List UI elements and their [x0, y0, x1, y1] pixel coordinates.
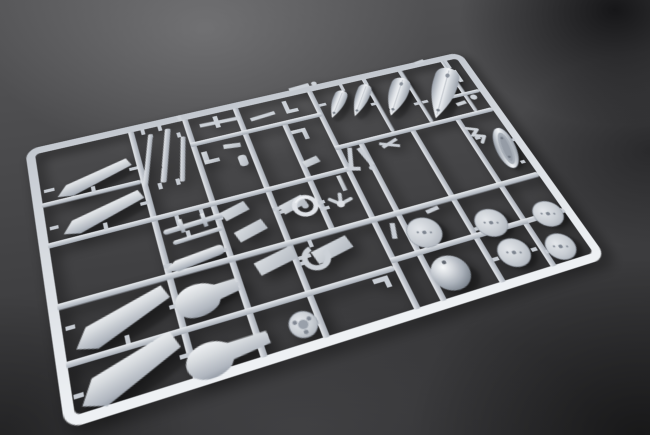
sprue-tree [25, 52, 607, 430]
strip-1 [143, 134, 153, 187]
sprue-photograph [0, 0, 650, 435]
strip-3 [180, 136, 186, 181]
sprue-canvas [25, 52, 607, 430]
strip-2 [160, 129, 170, 183]
